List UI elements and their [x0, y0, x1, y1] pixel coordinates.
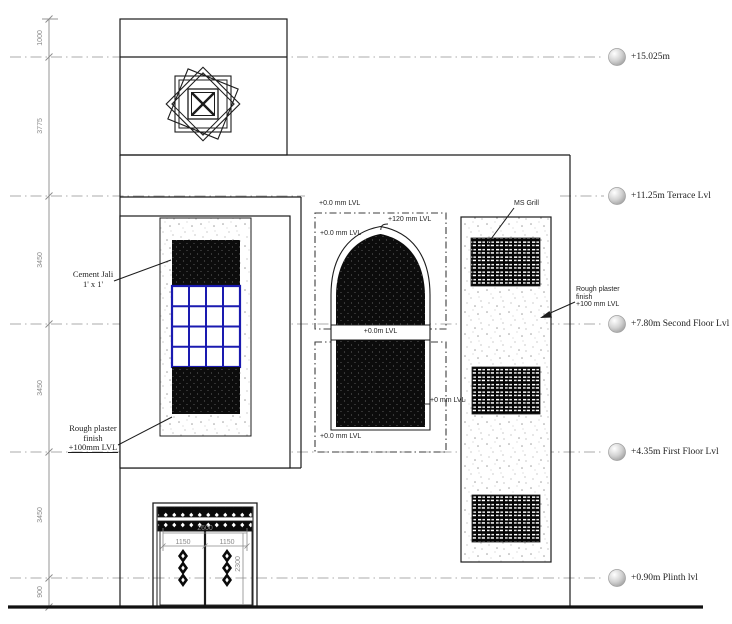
- level-markers: [609, 49, 626, 587]
- plaster-note-right: Rough plaster finish +100 mm LVL: [576, 286, 620, 309]
- arch-label-apex: +120 mm LVL: [388, 216, 431, 224]
- arch-label-bottom: +0.0 mm LVL: [320, 433, 361, 441]
- ms-grill-label: MS Grill: [514, 200, 539, 208]
- door-dim-right-leaf: 1150: [211, 539, 243, 547]
- dimension-label: 3450: [37, 499, 45, 531]
- arch-label-band: +0.0m LVL: [353, 328, 408, 336]
- cement-jali-note: Cement Jali 1' x 1': [56, 270, 130, 289]
- ms-grill-1: [471, 238, 540, 286]
- jali-panel-bottom: [172, 367, 240, 414]
- dimension-label: 1000: [37, 22, 45, 54]
- jali-window: [68, 218, 251, 453]
- arch-label-sill: +0 mm LVL: [430, 397, 465, 405]
- elevation-linework: [0, 0, 732, 624]
- door-dim-left-leaf: 1150: [167, 539, 199, 547]
- level-label: +11.25m Terrace Lvl: [631, 191, 711, 202]
- dimension-label: 3775: [37, 110, 45, 142]
- cement-jali-line2: 1' x 1': [56, 280, 130, 290]
- level-label: +15.025m: [631, 52, 670, 63]
- arch-label-upper: +0.0 mm LVL: [320, 230, 361, 238]
- door-band-top: [158, 507, 252, 517]
- plaster-right-line2: finish: [576, 294, 620, 302]
- level-label: +7.80m Second Floor Lvl: [631, 319, 729, 330]
- plaster-right-line1: Rough plaster: [576, 286, 620, 294]
- elevation-drawing: +15.025m +11.25m Terrace Lvl +7.80m Seco…: [0, 0, 732, 624]
- plaster-left-line3: +100mm LVL: [56, 443, 130, 453]
- ms-grill-3: [472, 495, 540, 542]
- jali-blue-grid: [172, 286, 240, 367]
- arch-label-top: +0.0 mm LVL: [319, 200, 360, 208]
- ms-grill-2: [472, 367, 540, 414]
- plaster-right-line3: +100 mm LVL: [576, 301, 620, 309]
- door-dim-overall: 2600: [188, 525, 222, 533]
- jali-panel-top: [172, 240, 240, 286]
- dimension-label: 3450: [37, 244, 45, 276]
- dimension-label: 3450: [37, 372, 45, 404]
- grill-panel: [461, 208, 575, 562]
- plaster-note-left: Rough plaster finish +100mm LVL: [56, 424, 130, 453]
- level-label: +4.35m First Floor Lvl: [631, 447, 719, 458]
- level-label: +0.90m Plinth lvl: [631, 573, 698, 584]
- door-dim-height: 2300: [235, 548, 243, 580]
- dimension-label: 900: [37, 576, 45, 608]
